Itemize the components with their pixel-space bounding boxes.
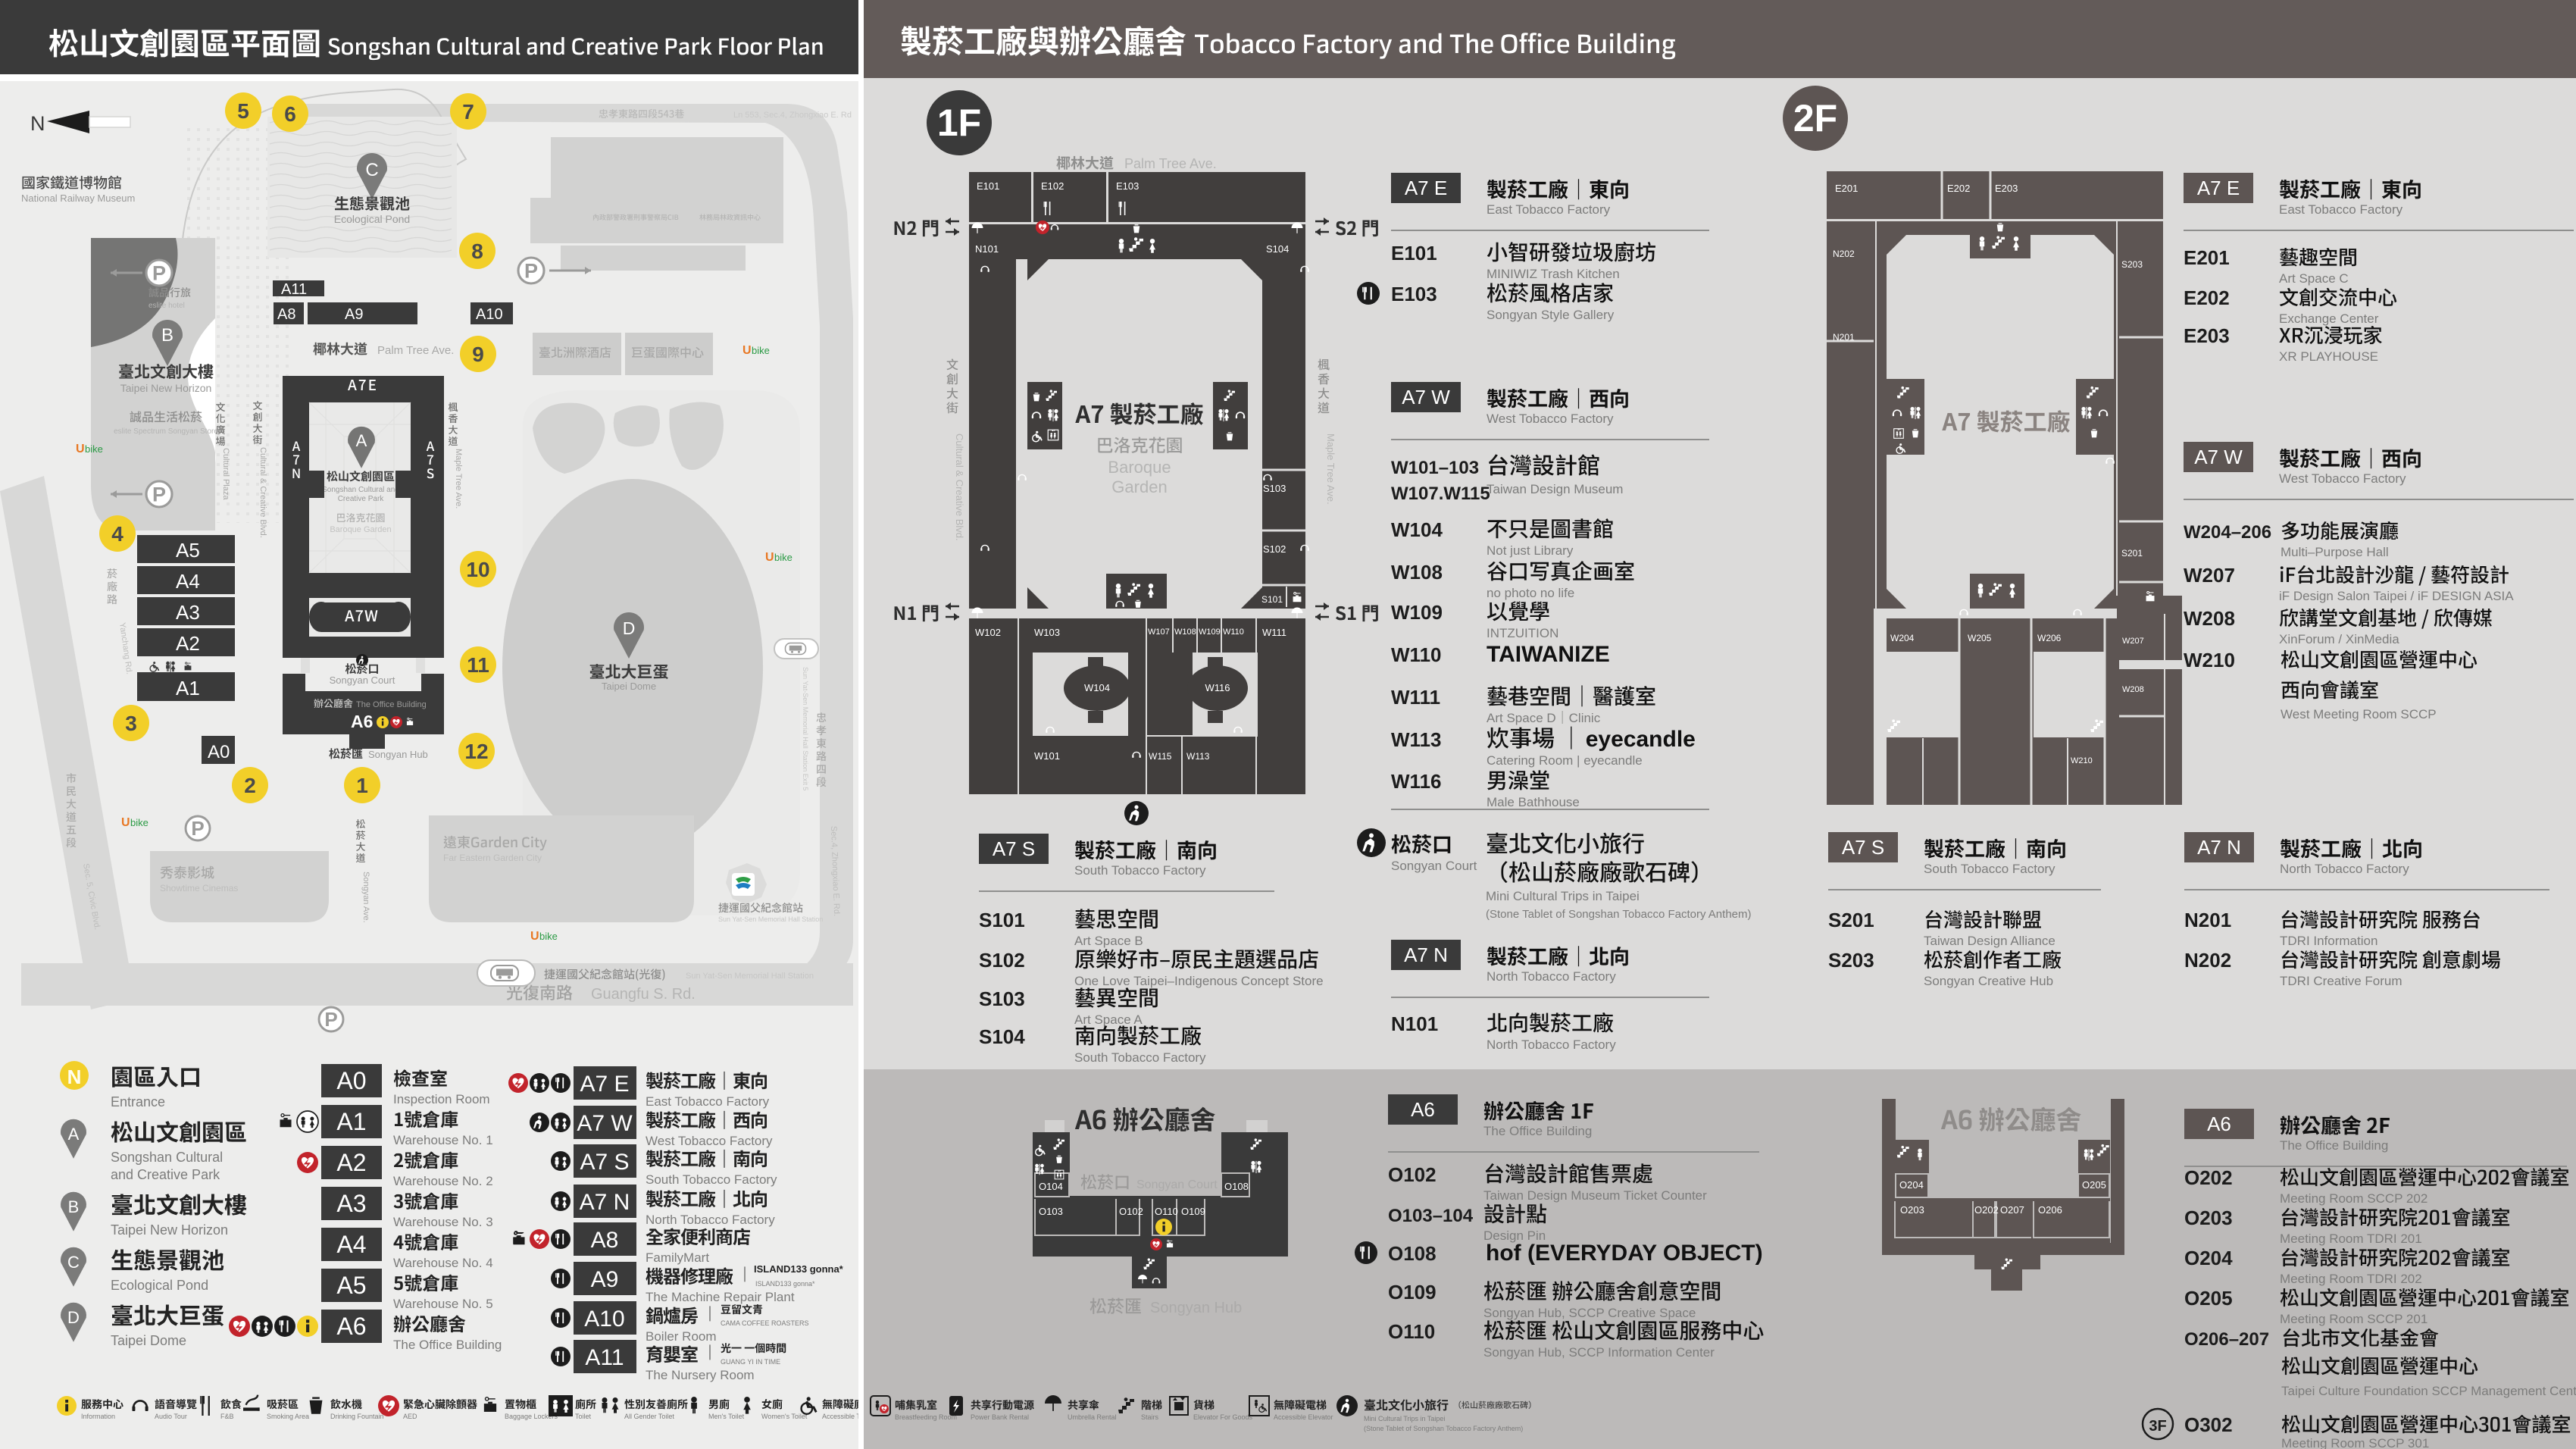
svg-text:Stairs: Stairs <box>1141 1413 1159 1421</box>
svg-text:Taiwan Design Alliance: Taiwan Design Alliance <box>1924 934 2055 948</box>
svg-text:A7 E: A7 E <box>2197 177 2240 199</box>
svg-text:P: P <box>191 817 204 840</box>
svg-text:Maple Tree Ave.: Maple Tree Ave. <box>1325 433 1336 505</box>
svg-text:A9: A9 <box>345 306 363 323</box>
svg-text:eslite hotel: eslite hotel <box>148 302 185 310</box>
svg-text:W204: W204 <box>1890 633 1915 643</box>
svg-text:A10: A10 <box>476 306 503 323</box>
svg-text:Warehouse No. 3: Warehouse No. 3 <box>393 1215 493 1229</box>
svg-text:W210: W210 <box>2071 756 2093 765</box>
svg-text:Taipei New Horizon: Taipei New Horizon <box>111 1222 228 1238</box>
svg-text:A7 E: A7 E <box>1405 177 1447 199</box>
svg-text:North Tobacco Factory: North Tobacco Factory <box>1487 969 1616 984</box>
svg-text:West Meeting Room SCCP: West Meeting Room SCCP <box>2281 707 2437 721</box>
svg-text:D: D <box>623 618 636 638</box>
svg-text:E103: E103 <box>1116 180 1139 192</box>
svg-text:Songyan Court: Songyan Court <box>1136 1178 1218 1191</box>
svg-text:ISLAND133 gonna*: ISLAND133 gonna* <box>754 1263 844 1275</box>
svg-text:Sun Yat-Sen Memorial Hall Stat: Sun Yat-Sen Memorial Hall Station <box>686 972 814 981</box>
svg-text:and Creative Park: and Creative Park <box>111 1167 220 1182</box>
svg-text:W110: W110 <box>1223 627 1244 637</box>
svg-text:O204: O204 <box>1899 1179 1924 1191</box>
svg-text:W116: W116 <box>1391 770 1442 793</box>
svg-text:A2: A2 <box>176 632 200 655</box>
svg-text:Warehouse No. 5: Warehouse No. 5 <box>393 1297 493 1311</box>
svg-text:The Nursery Room: The Nursery Room <box>646 1368 755 1382</box>
svg-text:A6: A6 <box>1411 1098 1435 1121</box>
svg-text:Taipei Dome: Taipei Dome <box>111 1333 186 1348</box>
svg-text:O102: O102 <box>1388 1163 1436 1186</box>
svg-text:P: P <box>524 259 538 282</box>
svg-text:Cultural & Creative Blvd.: Cultural & Creative Blvd. <box>954 433 965 541</box>
svg-text:A6: A6 <box>336 1313 366 1340</box>
svg-text:Boiler Room: Boiler Room <box>646 1329 717 1344</box>
svg-text:A: A <box>68 1125 80 1144</box>
svg-text:U: U <box>76 443 85 455</box>
svg-text:Baroque: Baroque <box>1108 458 1171 477</box>
svg-text:Cultural Plaza: Cultural Plaza <box>221 448 230 500</box>
svg-text:5: 5 <box>237 99 249 123</box>
svg-text:W104: W104 <box>1391 518 1443 541</box>
svg-text:INTZUITION: INTZUITION <box>1487 626 1558 640</box>
svg-text:Songyan Court: Songyan Court <box>330 674 395 686</box>
svg-text:S104: S104 <box>979 1025 1025 1048</box>
svg-text:Songyan Style Gallery: Songyan Style Gallery <box>1487 308 1615 322</box>
svg-text:E203: E203 <box>1995 183 2018 194</box>
svg-text:9: 9 <box>472 343 484 366</box>
svg-text:South Tobacco Factory: South Tobacco Factory <box>1074 863 1206 878</box>
svg-text:3F: 3F <box>2149 1418 2166 1435</box>
svg-text:eyecandle: eyecandle <box>1586 727 1696 752</box>
svg-text:W108: W108 <box>1391 561 1443 584</box>
svg-text:Meeting Room TDRI 202: Meeting Room TDRI 202 <box>2280 1272 2422 1286</box>
svg-text:O108: O108 <box>1224 1181 1249 1192</box>
svg-text:MINIWIZ Trash Kitchen: MINIWIZ Trash Kitchen <box>1487 267 1620 281</box>
svg-text:W104: W104 <box>1084 682 1110 693</box>
svg-text:E102: E102 <box>1041 180 1064 192</box>
svg-text:Catering Room | eyecandle: Catering Room | eyecandle <box>1487 753 1643 768</box>
svg-text:O109: O109 <box>1181 1206 1205 1217</box>
svg-text:S103: S103 <box>1263 483 1286 494</box>
svg-text:A7 W: A7 W <box>2194 446 2243 468</box>
svg-text:S203: S203 <box>2121 259 2143 270</box>
svg-text:Baroque Garden: Baroque Garden <box>330 525 391 534</box>
svg-text:FamilyMart: FamilyMart <box>646 1250 709 1265</box>
svg-text:West Tobacco Factory: West Tobacco Factory <box>2279 471 2406 486</box>
svg-text:Ln 553, Sec.4, Zhongxiao E. Rd: Ln 553, Sec.4, Zhongxiao E. Rd <box>733 111 852 120</box>
svg-text:Sun Yat-Sen Memorial Hall Stat: Sun Yat-Sen Memorial Hall Station <box>718 915 823 923</box>
svg-text:Songshan Cultural: Songshan Cultural <box>111 1150 223 1165</box>
svg-text:W208: W208 <box>2184 607 2235 630</box>
svg-text:CAMA COFFEE ROASTERS: CAMA COFFEE ROASTERS <box>721 1319 809 1327</box>
svg-text:O102: O102 <box>1119 1206 1143 1217</box>
svg-text:N201: N201 <box>1833 332 1855 343</box>
svg-text:TDRI Information: TDRI Information <box>2280 934 2377 948</box>
svg-text:Songyan Creative Hub: Songyan Creative Hub <box>1924 974 2053 988</box>
svg-text:O108: O108 <box>1388 1242 1436 1265</box>
svg-text:Warehouse No. 2: Warehouse No. 2 <box>393 1174 493 1188</box>
svg-text:W108: W108 <box>1174 627 1196 637</box>
svg-text:Taipei Culture Foundation SCCP: Taipei Culture Foundation SCCP Managemen… <box>2281 1384 2576 1398</box>
svg-text:A10: A10 <box>584 1307 624 1332</box>
svg-text:Umbrella Rental: Umbrella Rental <box>1068 1413 1117 1421</box>
svg-text:E202: E202 <box>2184 286 2230 309</box>
svg-text:4: 4 <box>111 522 123 546</box>
svg-text:Mini Cultural Trips in Taipei: Mini Cultural Trips in Taipei <box>1486 889 1640 903</box>
svg-text:S102: S102 <box>1263 543 1286 555</box>
svg-text:Male Bathhouse: Male Bathhouse <box>1487 795 1580 809</box>
svg-text:Art Space D｜Clinic: Art Space D｜Clinic <box>1487 711 1601 725</box>
svg-text:W210: W210 <box>2184 649 2235 671</box>
svg-text:C: C <box>365 160 378 180</box>
svg-text:A7 S: A7 S <box>993 837 1035 860</box>
svg-text:South Tobacco Factory: South Tobacco Factory <box>1924 862 2055 876</box>
svg-text:O206: O206 <box>2038 1204 2062 1216</box>
svg-text:N: N <box>30 112 45 135</box>
svg-text:Meeting Room SCCP 202: Meeting Room SCCP 202 <box>2280 1191 2428 1206</box>
svg-text:O205: O205 <box>2082 1179 2106 1191</box>
svg-text:XR PLAYHOUSE: XR PLAYHOUSE <box>2279 349 2378 364</box>
svg-text:Songyan Ave.: Songyan Ave. <box>361 872 370 923</box>
svg-text:bike: bike <box>130 817 148 828</box>
svg-text:S101: S101 <box>1261 594 1283 605</box>
svg-text:O103–104: O103–104 <box>1388 1206 1474 1226</box>
svg-text:W103: W103 <box>1034 627 1060 638</box>
svg-text:W107: W107 <box>1148 627 1170 637</box>
svg-text:Sun Yat-Sen Memorial Hall Stat: Sun Yat-Sen Memorial Hall Station Exit 5 <box>802 667 809 790</box>
svg-text:GUANG YI IN TIME: GUANG YI IN TIME <box>721 1358 780 1366</box>
svg-text:Inspection Room: Inspection Room <box>393 1092 490 1106</box>
svg-text:Men's Toilet: Men's Toilet <box>708 1413 745 1420</box>
svg-text:XinForum / XinMedia: XinForum / XinMedia <box>2279 632 2399 646</box>
svg-text:N202: N202 <box>1833 249 1855 259</box>
svg-text:Palm Tree Ave.: Palm Tree Ave. <box>377 344 454 357</box>
svg-text:S101: S101 <box>979 909 1025 931</box>
svg-text:E201: E201 <box>1835 183 1858 194</box>
svg-text:A8: A8 <box>277 306 295 323</box>
svg-text:U: U <box>121 816 130 829</box>
svg-text:Ecological Pond: Ecological Pond <box>111 1278 208 1293</box>
svg-text:All Gender Toilet: All Gender Toilet <box>624 1413 674 1420</box>
svg-text:A0: A0 <box>208 742 230 762</box>
svg-text:Art Space B: Art Space B <box>1074 934 1143 948</box>
svg-text:Drinking Fountain: Drinking Fountain <box>330 1413 384 1420</box>
svg-text:Songyan Hub: Songyan Hub <box>1150 1300 1242 1316</box>
svg-text:Songyan Court: Songyan Court <box>1391 859 1477 873</box>
svg-text:F&B: F&B <box>220 1413 234 1420</box>
svg-text:O109: O109 <box>1388 1281 1436 1303</box>
svg-text:O206–207: O206–207 <box>2184 1329 2269 1350</box>
svg-text:S104: S104 <box>1266 243 1289 255</box>
svg-text:W206: W206 <box>2037 633 2062 643</box>
svg-text:One Love Taipei–Indigenous Con: One Love Taipei–Indigenous Concept Store <box>1074 974 1324 988</box>
svg-text:O205: O205 <box>2184 1287 2233 1310</box>
svg-text:A4: A4 <box>336 1231 366 1258</box>
svg-text:eslite Spectrum Songyan Store: eslite Spectrum Songyan Store <box>114 427 218 436</box>
svg-text:N101: N101 <box>975 243 999 255</box>
svg-text:A9: A9 <box>591 1267 619 1292</box>
svg-text:O302: O302 <box>2184 1413 2233 1436</box>
svg-text:W208: W208 <box>2122 685 2144 694</box>
svg-text:E103: E103 <box>1391 283 1437 305</box>
svg-text:O207: O207 <box>2000 1204 2024 1216</box>
svg-text:Ecological Pond: Ecological Pond <box>334 213 410 225</box>
svg-text:Power Bank Rental: Power Bank Rental <box>971 1413 1029 1421</box>
svg-text:West Tobacco Factory: West Tobacco Factory <box>1487 412 1614 426</box>
svg-text:W107.W115: W107.W115 <box>1391 484 1490 504</box>
svg-text:iF Design Salon Taipei / iF DE: iF Design Salon Taipei / iF DESIGN ASIA <box>2279 589 2514 603</box>
svg-text:A5: A5 <box>336 1272 366 1299</box>
svg-text:U: U <box>530 930 539 943</box>
svg-text:Art Space A: Art Space A <box>1074 1012 1143 1027</box>
svg-text:U: U <box>742 344 752 357</box>
svg-text:North Tobacco Factory: North Tobacco Factory <box>2280 862 2409 876</box>
svg-text:Cultural & Creative Blvd.: Cultural & Creative Blvd. <box>258 447 267 538</box>
svg-text:B: B <box>161 325 174 346</box>
svg-text:W102: W102 <box>975 627 1001 638</box>
svg-text:(Stone Tablet of Songshan Toba: (Stone Tablet of Songshan Tobacco Factor… <box>1364 1425 1523 1432</box>
svg-text:O103: O103 <box>1039 1206 1063 1217</box>
svg-text:North Tobacco Factory: North Tobacco Factory <box>1487 1037 1616 1052</box>
svg-text:Songyan Hub, SCCP Information: Songyan Hub, SCCP Information Center <box>1483 1345 1715 1360</box>
svg-text:bike: bike <box>774 552 792 563</box>
svg-text:O110: O110 <box>1155 1206 1178 1217</box>
svg-text:Multi–Purpose Hall: Multi–Purpose Hall <box>2281 545 2389 559</box>
svg-text:A7 S: A7 S <box>580 1150 629 1175</box>
svg-text:A5: A5 <box>176 539 200 562</box>
svg-text:A1: A1 <box>336 1108 366 1135</box>
svg-text:A7 E: A7 E <box>580 1072 629 1097</box>
svg-text:The Office Building: The Office Building <box>356 700 427 709</box>
svg-text:7: 7 <box>462 100 474 124</box>
svg-text:A4: A4 <box>176 570 200 593</box>
svg-text:Meeting Room TDRI 201: Meeting Room TDRI 201 <box>2280 1231 2422 1246</box>
svg-text:W101–103: W101–103 <box>1391 458 1479 478</box>
svg-text:Warehouse No. 4: Warehouse No. 4 <box>393 1256 493 1270</box>
svg-text:1F: 1F <box>937 102 981 144</box>
svg-text:Taipei Dome: Taipei Dome <box>602 681 656 692</box>
svg-text:Meeting Room SCCP 201: Meeting Room SCCP 201 <box>2280 1312 2428 1326</box>
svg-text:The Machine Repair Plant: The Machine Repair Plant <box>646 1290 795 1304</box>
svg-text:S203: S203 <box>1828 949 1874 972</box>
svg-text:Warehouse No. 1: Warehouse No. 1 <box>393 1133 493 1147</box>
svg-text:W113: W113 <box>1186 751 1210 762</box>
svg-text:no photo no life: no photo no life <box>1487 586 1574 600</box>
svg-text:Taiwan Design Museum: Taiwan Design Museum <box>1487 482 1623 496</box>
svg-text:O110: O110 <box>1388 1320 1435 1343</box>
svg-text:N: N <box>67 1066 82 1088</box>
svg-text:Accessible Elevator: Accessible Elevator <box>1274 1413 1333 1421</box>
svg-text:Songyan Hub, SCCP Creative Spa: Songyan Hub, SCCP Creative Space <box>1483 1306 1696 1320</box>
svg-text:Palm Tree Ave.: Palm Tree Ave. <box>1124 156 1217 171</box>
svg-text:bike: bike <box>539 931 558 942</box>
svg-text:A2: A2 <box>336 1149 366 1176</box>
svg-text:3: 3 <box>125 712 137 735</box>
svg-text:U: U <box>765 551 774 564</box>
svg-text:P: P <box>152 261 166 284</box>
svg-text:N201: N201 <box>2184 909 2231 931</box>
svg-text:W110: W110 <box>1391 643 1442 666</box>
svg-text:A7 N: A7 N <box>1404 944 1448 966</box>
svg-text:O203: O203 <box>2184 1206 2233 1229</box>
svg-text:O104: O104 <box>1039 1181 1063 1192</box>
svg-text:Far Eastern Garden City: Far Eastern Garden City <box>443 853 542 863</box>
svg-text:West Tobacco Factory: West Tobacco Factory <box>646 1134 773 1148</box>
svg-text:O202: O202 <box>2184 1166 2233 1189</box>
svg-text:W109: W109 <box>1199 627 1221 637</box>
svg-text:E201: E201 <box>2184 246 2230 269</box>
svg-text:O203: O203 <box>1900 1204 1924 1216</box>
svg-text:East Tobacco Factory: East Tobacco Factory <box>646 1094 770 1109</box>
svg-text:O204: O204 <box>2184 1247 2233 1269</box>
svg-text:Songyan Hub: Songyan Hub <box>368 749 428 760</box>
svg-text:W101: W101 <box>1034 750 1060 762</box>
svg-text:East Tobacco Factory: East Tobacco Factory <box>1487 202 1611 217</box>
svg-text:East Tobacco Factory: East Tobacco Factory <box>2279 202 2403 217</box>
svg-text:E202: E202 <box>1947 183 1970 194</box>
svg-text:Information: Information <box>81 1413 115 1420</box>
svg-text:W116: W116 <box>1205 682 1230 693</box>
svg-text:Entrance: Entrance <box>111 1094 165 1109</box>
svg-text:Audio Tour: Audio Tour <box>155 1413 187 1420</box>
svg-text:A7 N: A7 N <box>2197 836 2241 859</box>
svg-text:A11: A11 <box>585 1345 624 1370</box>
svg-text:W207: W207 <box>2184 564 2235 587</box>
svg-text:W207: W207 <box>2122 637 2144 646</box>
svg-text:A: A <box>356 431 367 450</box>
svg-text:Creative Park: Creative Park <box>338 495 385 503</box>
svg-text:A7 W: A7 W <box>577 1111 633 1136</box>
svg-text:Guangfu S. Rd.: Guangfu S. Rd. <box>591 986 696 1003</box>
svg-text:E101: E101 <box>977 180 999 192</box>
svg-text:E101: E101 <box>1391 242 1437 264</box>
svg-text:S102: S102 <box>979 949 1025 972</box>
svg-text:Showtime Cinemas: Showtime Cinemas <box>160 883 238 893</box>
svg-text:Breastfeeding Room: Breastfeeding Room <box>895 1413 957 1421</box>
svg-text:2F: 2F <box>1793 97 1837 139</box>
svg-text:Elevator For Goods: Elevator For Goods <box>1193 1413 1253 1421</box>
svg-text:A8: A8 <box>591 1228 619 1253</box>
svg-text:N101: N101 <box>1391 1012 1438 1035</box>
svg-text:A6: A6 <box>351 712 373 731</box>
svg-text:Art Space C: Art Space C <box>2279 271 2349 286</box>
svg-text:The Office Building: The Office Building <box>1483 1124 1592 1138</box>
svg-text:South Tobacco Factory: South Tobacco Factory <box>646 1172 777 1187</box>
svg-text:bike: bike <box>752 345 770 356</box>
svg-text:C: C <box>67 1253 80 1272</box>
svg-text:N202: N202 <box>2184 949 2231 972</box>
svg-text:6: 6 <box>284 102 296 126</box>
svg-text:Garden: Garden <box>1111 477 1167 496</box>
svg-text:W113: W113 <box>1391 728 1442 751</box>
svg-text:E203: E203 <box>2184 324 2230 347</box>
svg-text:Exchange Center: Exchange Center <box>2279 311 2379 326</box>
svg-text:B: B <box>68 1197 80 1216</box>
svg-text:11: 11 <box>467 653 489 677</box>
svg-text:Women's Toilet: Women's Toilet <box>761 1413 808 1420</box>
svg-text:P: P <box>152 483 166 505</box>
svg-text:The Office Building: The Office Building <box>2280 1138 2388 1153</box>
svg-text:A1: A1 <box>176 677 200 699</box>
svg-text:P: P <box>324 1008 337 1031</box>
svg-text:S201: S201 <box>1828 909 1874 931</box>
svg-text:A0: A0 <box>336 1067 366 1094</box>
svg-text:South Tobacco Factory: South Tobacco Factory <box>1074 1050 1206 1065</box>
svg-text:1: 1 <box>356 774 368 797</box>
svg-text:A3: A3 <box>176 601 200 624</box>
svg-text:Songshan Cultural and: Songshan Cultural and <box>322 486 399 494</box>
svg-text:S201: S201 <box>2121 548 2143 559</box>
svg-text:W205: W205 <box>1968 633 1992 643</box>
svg-text:W111: W111 <box>1391 686 1440 709</box>
svg-text:Maple Tree Ave.: Maple Tree Ave. <box>454 449 463 509</box>
svg-text:North Tobacco Factory: North Tobacco Factory <box>646 1213 775 1227</box>
svg-text:W111: W111 <box>1262 627 1286 638</box>
svg-text:W115: W115 <box>1149 751 1172 762</box>
svg-text:S103: S103 <box>979 987 1025 1010</box>
svg-text:TAIWANIZE: TAIWANIZE <box>1487 642 1610 667</box>
svg-text:Not just Library: Not just Library <box>1487 543 1574 558</box>
svg-text:8: 8 <box>471 239 483 263</box>
svg-text:W204–206: W204–206 <box>2184 522 2271 543</box>
svg-text:bike: bike <box>85 443 103 455</box>
svg-text:AED: AED <box>403 1413 417 1420</box>
svg-text:The Office Building: The Office Building <box>393 1338 502 1352</box>
svg-text:ISLAND133 gonna*: ISLAND133 gonna* <box>755 1280 815 1288</box>
svg-text:National Railway Museum: National Railway Museum <box>21 192 135 204</box>
svg-text:Mini Cultural Trips in Taipei: Mini Cultural Trips in Taipei <box>1364 1415 1445 1422</box>
svg-text:TDRI Creative Forum: TDRI Creative Forum <box>2280 974 2402 988</box>
svg-text:A3: A3 <box>336 1190 366 1217</box>
svg-text:(Stone Tablet of Songshan Toba: (Stone Tablet of Songshan Tobacco Factor… <box>1486 908 1752 921</box>
svg-text:A7 W: A7 W <box>1402 386 1450 408</box>
svg-text:Taipei New Horizon: Taipei New Horizon <box>120 382 212 394</box>
svg-text:W109: W109 <box>1391 601 1443 624</box>
svg-text:Taiwan Design Museum Ticket Co: Taiwan Design Museum Ticket Counter <box>1483 1188 1707 1203</box>
svg-text:O202: O202 <box>1974 1204 1999 1216</box>
svg-text:10: 10 <box>466 558 489 581</box>
svg-text:Smoking Area: Smoking Area <box>267 1413 309 1420</box>
svg-text:12: 12 <box>464 740 488 763</box>
svg-text:A7 N: A7 N <box>580 1190 630 1215</box>
svg-text:A11: A11 <box>281 281 307 298</box>
svg-text:D: D <box>67 1308 80 1327</box>
svg-text:2: 2 <box>244 774 256 797</box>
svg-text:Toilet: Toilet <box>575 1413 592 1420</box>
svg-text:hof (EVERYDAY OBJECT): hof (EVERYDAY OBJECT) <box>1486 1241 1763 1266</box>
svg-text:Meeting Room SCCP 301: Meeting Room SCCP 301 <box>2281 1436 2429 1449</box>
svg-text:A6: A6 <box>2207 1113 2231 1135</box>
svg-text:A7 S: A7 S <box>1842 836 1884 859</box>
